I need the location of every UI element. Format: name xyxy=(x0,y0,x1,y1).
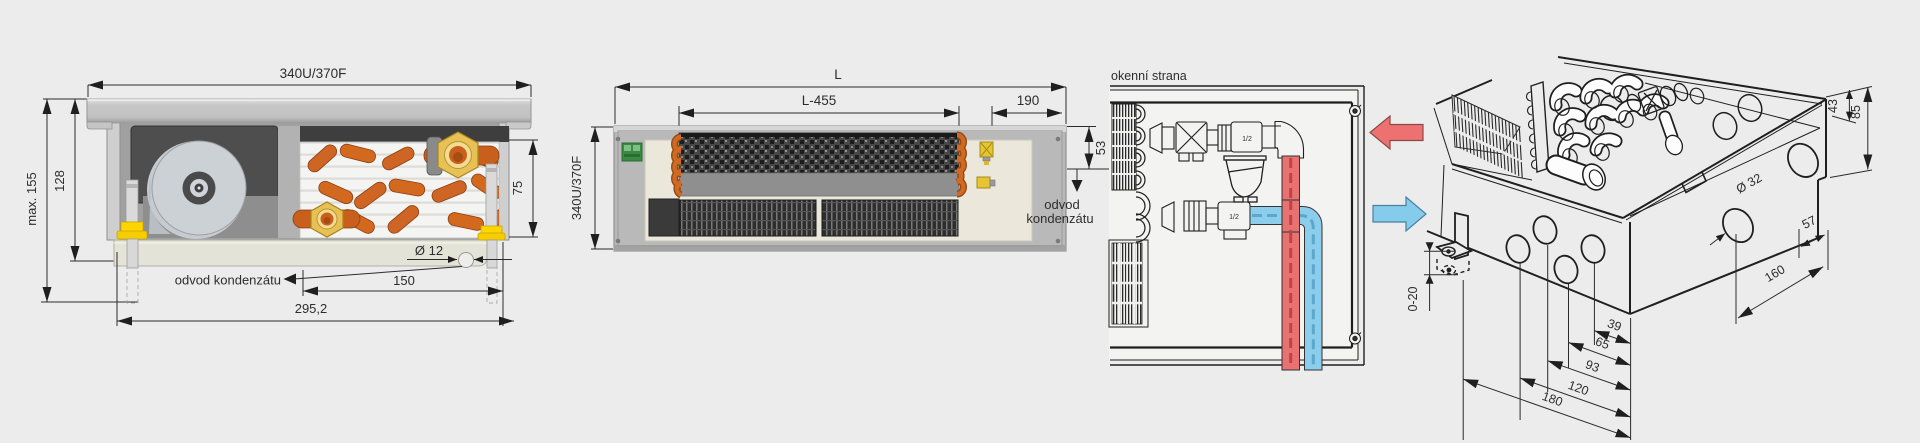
svg-text:okenní strana: okenní strana xyxy=(1111,69,1187,83)
svg-text:1/2: 1/2 xyxy=(1229,214,1239,221)
svg-text:L-455: L-455 xyxy=(802,93,837,108)
svg-text:85: 85 xyxy=(1849,105,1863,119)
svg-text:190: 190 xyxy=(1017,93,1040,108)
svg-text:max. 155: max. 155 xyxy=(24,172,39,225)
svg-text:kondenzátu: kondenzátu xyxy=(1026,211,1093,226)
svg-text:340U/370F: 340U/370F xyxy=(280,66,347,81)
svg-text:L: L xyxy=(834,67,842,82)
svg-text:odvod: odvod xyxy=(1044,197,1079,212)
svg-text:0-20: 0-20 xyxy=(1406,286,1420,311)
svg-text:295,2: 295,2 xyxy=(295,301,328,316)
svg-text:128: 128 xyxy=(52,170,67,192)
svg-text:150: 150 xyxy=(393,273,415,288)
svg-text:75: 75 xyxy=(510,181,525,195)
svg-text:340U/370F: 340U/370F xyxy=(569,156,584,220)
svg-text:1/2: 1/2 xyxy=(1242,136,1252,143)
svg-text:53: 53 xyxy=(1093,141,1108,155)
svg-text:43: 43 xyxy=(1826,99,1840,113)
svg-text:Ø 12: Ø 12 xyxy=(415,243,443,258)
svg-text:odvod kondenzátu: odvod kondenzátu xyxy=(175,273,281,288)
